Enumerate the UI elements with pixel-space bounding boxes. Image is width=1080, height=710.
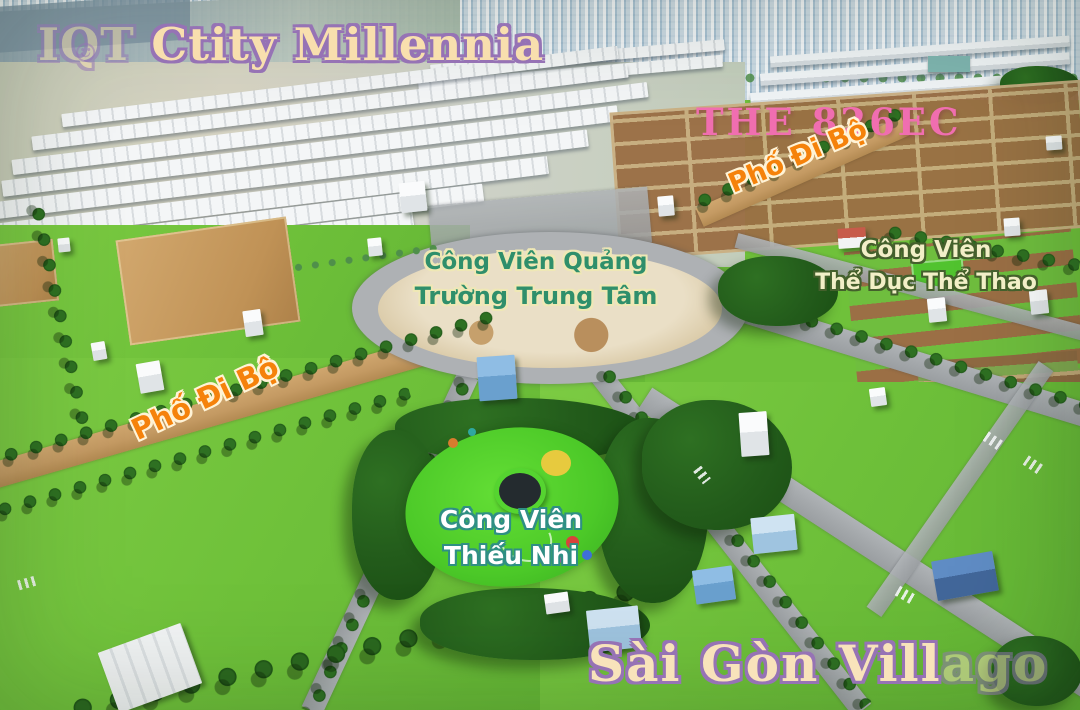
central-square-park-line2: Trường Trung Tâm	[410, 283, 662, 310]
house	[136, 360, 165, 394]
sports-park-label: Công Viên Thể Dục Thể Thao	[812, 238, 1040, 295]
house	[1046, 135, 1063, 150]
house	[477, 355, 518, 402]
sports-park-line1: Công Viên	[812, 238, 1040, 264]
house	[367, 237, 383, 256]
house	[399, 181, 428, 214]
project-title-main: Ctity Millennia	[151, 18, 544, 71]
grove	[642, 400, 792, 530]
house	[738, 411, 769, 457]
house	[927, 297, 947, 323]
central-square-park-label: Công Viên Quảng Trường Trung Tâm	[410, 250, 662, 310]
play-equipment	[448, 438, 458, 448]
house	[657, 195, 675, 216]
project-title: IQT Ctity Millennia	[38, 20, 544, 70]
central-square-park-line1: Công Viên Quảng	[410, 250, 662, 276]
aerial-photo: IQT Ctity Millennia ☺ THE 826EC Phố Đi B…	[0, 0, 1080, 710]
park-shed	[544, 591, 571, 614]
playground-yellow-circle	[541, 450, 571, 476]
children-park-label: Công Viên Thiếu Nhi	[416, 506, 606, 570]
house	[869, 387, 887, 407]
teal-factory	[928, 56, 970, 72]
saigon-village-label: Sài Gòn Villago	[588, 636, 1048, 692]
house	[242, 309, 263, 337]
saigon-village-main: Sài Gòn Vill	[588, 634, 942, 693]
sports-park-line2: Thể Dục Thể Thao	[812, 271, 1040, 296]
house	[692, 565, 736, 604]
house	[57, 237, 70, 252]
saigon-village-faded: ago	[942, 634, 1049, 693]
play-equipment	[468, 428, 476, 436]
children-park-line1: Công Viên	[416, 506, 606, 534]
smiley-icon: ☺	[74, 40, 97, 69]
house	[750, 514, 798, 554]
children-park-line2: Thiếu Nhi	[416, 542, 606, 570]
house	[1003, 217, 1020, 236]
house	[91, 341, 108, 361]
